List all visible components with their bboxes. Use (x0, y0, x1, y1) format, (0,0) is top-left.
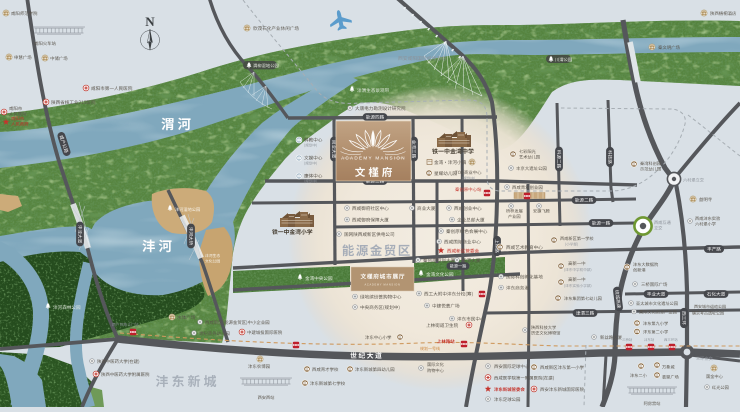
svg-text:N: N (145, 14, 155, 29)
svg-text:ACADEMY MANSION: ACADEMY MANSION (364, 283, 400, 287)
